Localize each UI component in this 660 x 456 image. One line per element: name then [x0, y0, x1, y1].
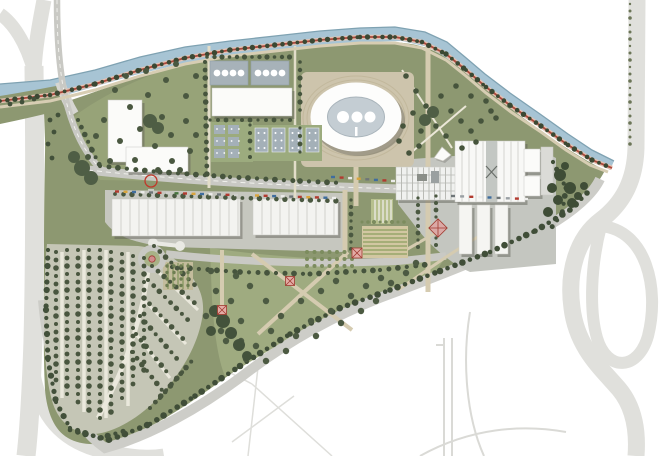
finger-strip-2: [477, 205, 493, 257]
finger-strip-1: [459, 205, 475, 257]
warehouse-west: [112, 199, 243, 239]
warehouse-east: [253, 199, 341, 238]
east-annex-1: [524, 149, 543, 175]
master-plan: [0, 0, 660, 456]
big-hall-north: [212, 88, 295, 119]
garden-pavilion-2: [286, 277, 295, 286]
site-plan-svg: [0, 0, 660, 456]
garden-pavilion-3: [218, 306, 227, 315]
parking-col-8: [130, 254, 136, 386]
parking-col-1: [53, 250, 59, 382]
grid-facade-building: [396, 167, 461, 203]
garden-pavilion-1: [352, 248, 362, 258]
crop-garden: [362, 226, 408, 258]
east-annex-2: [524, 176, 543, 199]
